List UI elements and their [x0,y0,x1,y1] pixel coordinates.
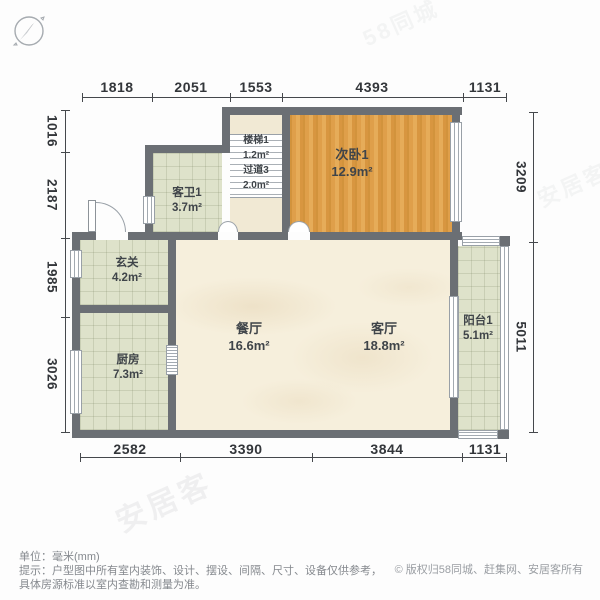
room-label-living: 客厅 18.8m² [324,320,444,354]
dim-label-left-3: 1985 [45,261,60,293]
room-area: 5.1m² [447,329,509,344]
room-area: 2.0m² [228,178,284,193]
dim-tick [61,152,70,153]
room-name: 客厅 [324,320,444,337]
room-name: 阳台1 [447,314,509,329]
dim-line-right [533,112,534,432]
wall-foyer-kitchen [72,305,176,313]
footer-copyright: © 版权归58同城、赶集网、安居客所有 [395,561,583,577]
dim-label-right-2: 5011 [514,321,529,352]
dim-tick [312,453,313,462]
dim-tick [82,93,83,102]
wall-kitchen-right-upper [168,313,176,345]
dim-tick [529,112,538,113]
room-label-balcony: 阳台1 5.1m² [447,314,509,344]
dim-label-bottom-4: 1131 [455,441,515,457]
room-label-bedroom2: 次卧1 12.9m² [292,146,412,180]
dim-line-bottom [80,457,507,458]
dim-tick [529,432,538,433]
dim-label-bottom-1: 2582 [100,441,160,457]
wall-balcony-corner-top [500,236,510,246]
room-label-bathroom: 客卫1 3.7m² [152,186,222,216]
room-label-dining: 餐厅 16.6m² [189,320,309,354]
wall-kitchen-right-lower [168,375,176,430]
dim-line-top [82,97,507,98]
dim-tick [61,432,70,433]
room-area: 16.6m² [189,337,309,354]
footer-tip-line2: 具体房源标准以室内查勘和测量为准。 [19,576,206,592]
dim-label-top-5: 1131 [455,79,515,95]
room-name: 楼梯1 [228,133,284,148]
window-balcony-bottom [458,430,498,439]
dim-tick [152,93,153,102]
wall-balcony-stub-top [450,240,458,296]
compass-icon [8,8,52,52]
window-balcony-top [462,236,500,246]
wall-balcony-corner-bottom [498,430,509,439]
room-area: 3.7m² [152,201,222,216]
sliding-door-living-balcony [449,296,459,398]
dim-tick [61,110,70,111]
wall-bath-bottom [145,232,218,240]
wall-bottom [72,430,458,438]
room-label-kitchen: 厨房 7.3m² [78,353,178,383]
room-area: 7.3m² [78,368,178,383]
dim-tick [80,453,81,462]
room-name: 过道3 [228,163,284,178]
wall-bedroom-bottom [310,232,462,240]
room-name: 玄关 [77,256,177,271]
room-area: 12.9m² [292,163,412,180]
entrance-door-leaf [88,200,96,232]
window-bedroom [450,122,462,222]
wall-balcony-stub-bottom [450,398,458,432]
room-label-foyer: 玄关 4.2m² [77,256,177,286]
dim-label-top-3: 1553 [226,79,286,95]
wall-bath-top [145,145,230,153]
dim-tick [180,453,181,462]
room-area: 18.8m² [324,337,444,354]
room-area: 4.2m² [77,271,177,286]
floorplan-page: { "compass": { "needle_direction": "NE" … [0,0,600,600]
copyright-icon: © [395,564,403,576]
dim-label-left-4: 3026 [45,358,60,390]
dim-tick [61,238,70,239]
dim-label-bottom-2: 3390 [216,441,276,457]
dim-label-top-2: 2051 [161,79,221,95]
dim-label-top-4: 4393 [342,79,402,95]
wall-entrance-right [128,232,145,240]
dim-label-left-2: 2187 [45,179,60,211]
dim-tick [529,242,538,243]
dim-line-left [65,110,66,432]
dim-label-left-1: 1016 [45,115,60,147]
copyright-text: 版权归58同城、赶集网、安居客所有 [406,564,583,576]
dim-label-bottom-3: 3844 [357,441,417,457]
room-name: 客卫1 [152,186,222,201]
watermark-anjuke: 安居客 [107,459,218,541]
watermark-58: 58同城 [357,0,444,53]
room-area: 1.2m² [228,148,284,163]
dim-label-right-1: 3209 [514,161,529,193]
dim-tick [61,317,70,318]
room-label-stairs-corridor: 楼梯1 1.2m² 过道3 2.0m² [228,133,284,193]
entrance-door-arc [96,202,126,232]
room-name: 次卧1 [292,146,412,163]
watermark-anjuke: 安居客 [532,154,600,214]
room-name: 厨房 [78,353,178,368]
room-name: 餐厅 [189,320,309,337]
dim-label-top-1: 1818 [87,79,147,95]
wall-corridor-bottom [238,232,288,240]
wall-top [222,107,462,115]
